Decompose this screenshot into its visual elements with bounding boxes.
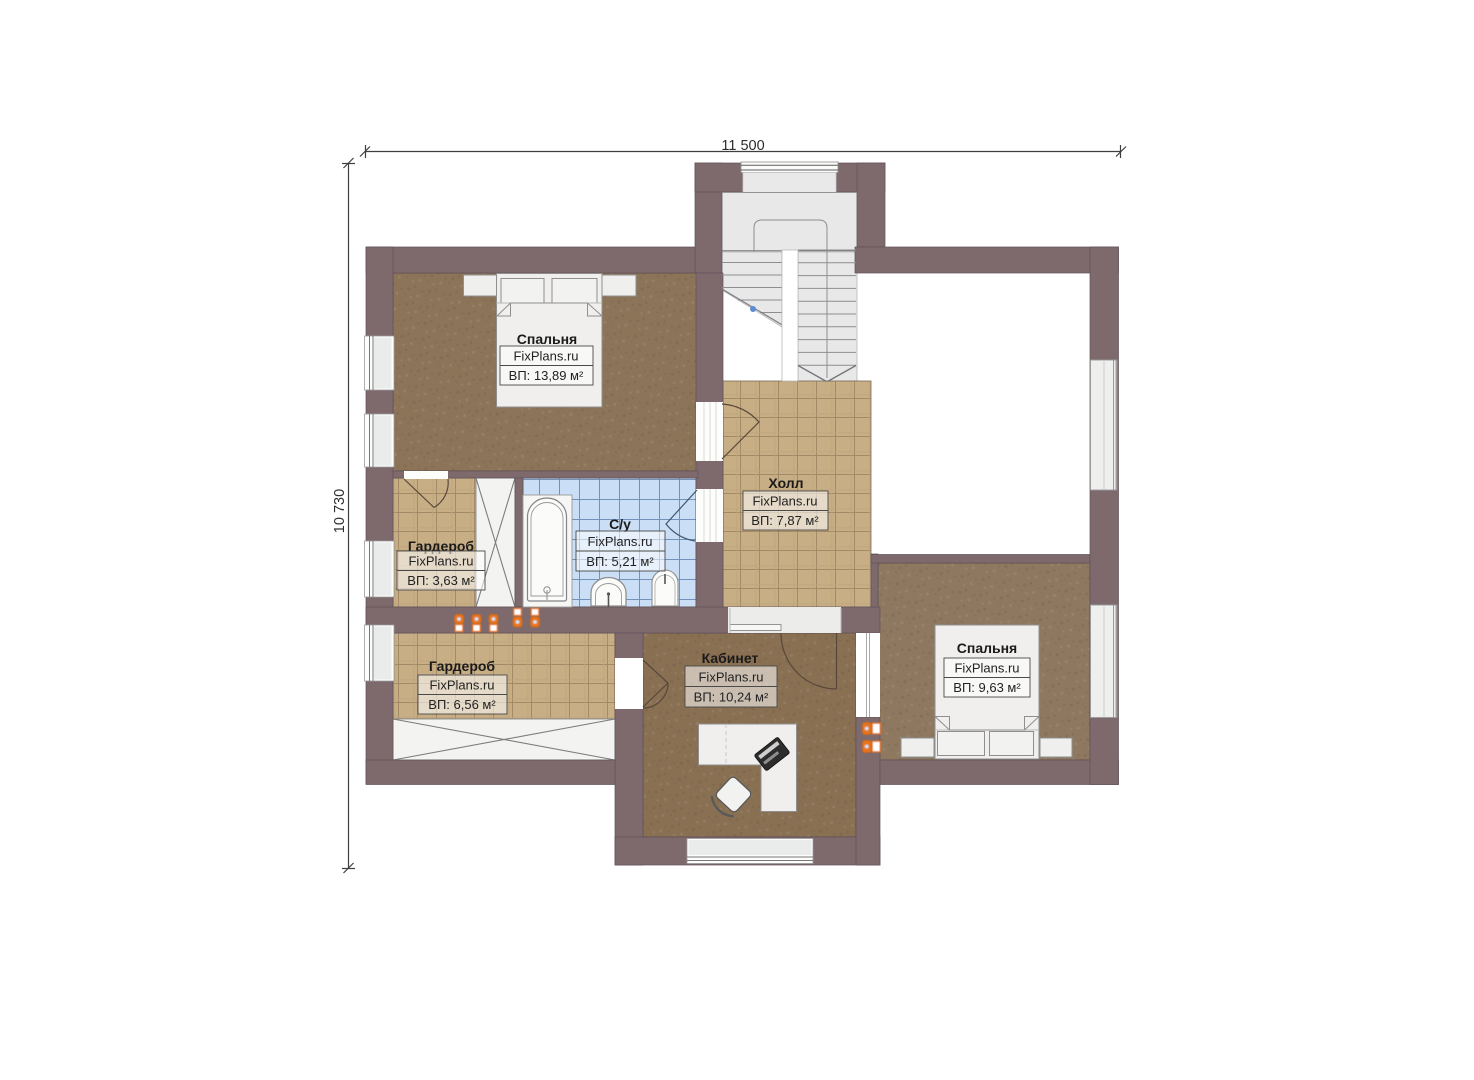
- svg-text:10 730: 10 730: [332, 489, 348, 533]
- svg-text:FixPlans.ru: FixPlans.ru: [429, 678, 494, 693]
- svg-text:FixPlans.ru: FixPlans.ru: [954, 661, 1019, 676]
- svg-text:11 500: 11 500: [721, 138, 764, 154]
- svg-text:Гардероб: Гардероб: [429, 658, 496, 674]
- svg-text:ВП: 9,63 м²: ВП: 9,63 м²: [953, 680, 1021, 695]
- svg-text:FixPlans.ru: FixPlans.ru: [587, 534, 652, 549]
- svg-text:FixPlans.ru: FixPlans.ru: [698, 670, 763, 685]
- svg-text:ВП: 10,24 м²: ВП: 10,24 м²: [694, 690, 769, 705]
- svg-text:FixPlans.ru: FixPlans.ru: [408, 554, 473, 569]
- svg-text:FixPlans.ru: FixPlans.ru: [513, 349, 578, 364]
- svg-text:ВП: 7,87 м²: ВП: 7,87 м²: [751, 513, 819, 528]
- svg-text:ВП: 5,21 м²: ВП: 5,21 м²: [586, 554, 654, 569]
- svg-text:ВП: 3,63 м²: ВП: 3,63 м²: [407, 573, 475, 588]
- svg-text:ВП: 13,89 м²: ВП: 13,89 м²: [509, 368, 584, 383]
- svg-text:С/у: С/у: [609, 516, 631, 532]
- svg-text:Спальня: Спальня: [517, 331, 577, 347]
- svg-text:Холл: Холл: [768, 475, 803, 491]
- svg-text:Кабинет: Кабинет: [702, 650, 759, 666]
- svg-text:Спальня: Спальня: [957, 640, 1017, 656]
- svg-text:ВП: 6,56 м²: ВП: 6,56 м²: [428, 697, 496, 712]
- svg-text:FixPlans.ru: FixPlans.ru: [752, 494, 817, 509]
